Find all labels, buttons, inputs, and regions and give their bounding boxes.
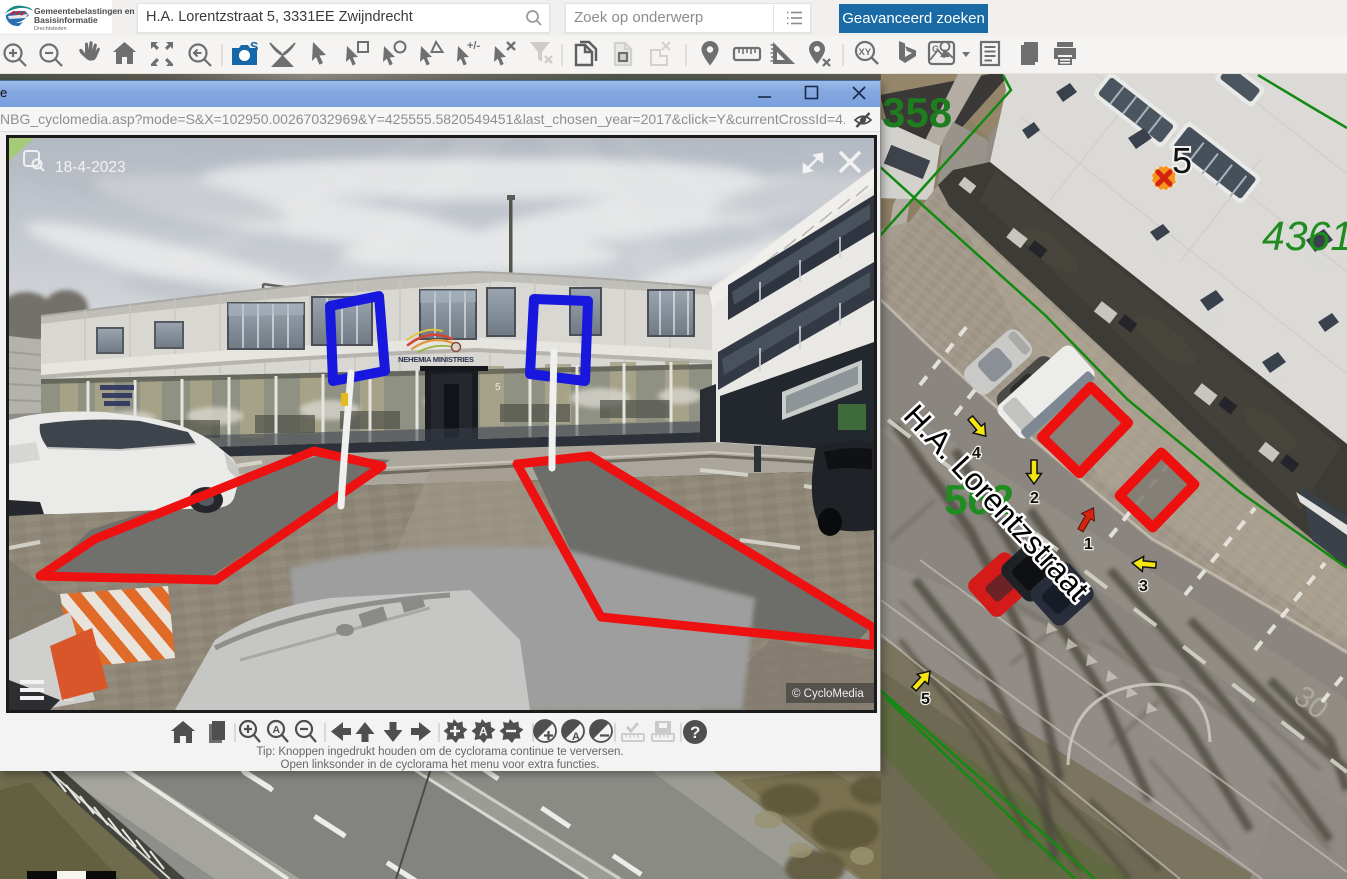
svg-text:2: 2 <box>1030 490 1039 507</box>
svg-text:358: 358 <box>882 89 952 136</box>
svg-text:A: A <box>572 731 580 743</box>
svg-text:5: 5 <box>495 382 501 393</box>
svg-text:A: A <box>273 724 281 736</box>
svg-text:5: 5 <box>921 691 930 708</box>
svg-text:© CycloMedia: © CycloMedia <box>792 688 864 700</box>
svg-text:XY: XY <box>859 47 872 58</box>
svg-text:S: S <box>250 40 258 54</box>
svg-text:3: 3 <box>1139 578 1148 595</box>
svg-text:A: A <box>479 725 488 739</box>
svg-text:4361: 4361 <box>1262 213 1347 259</box>
svg-text:NEHEMIA MINISTRIES: NEHEMIA MINISTRIES <box>398 355 474 364</box>
svg-text:G: G <box>932 44 939 54</box>
svg-text:4: 4 <box>972 445 981 462</box>
svg-text:+/-: +/- <box>467 40 480 52</box>
svg-text:18-4-2023: 18-4-2023 <box>55 159 126 176</box>
svg-text:?: ? <box>690 723 700 742</box>
svg-text:1: 1 <box>1084 536 1093 553</box>
